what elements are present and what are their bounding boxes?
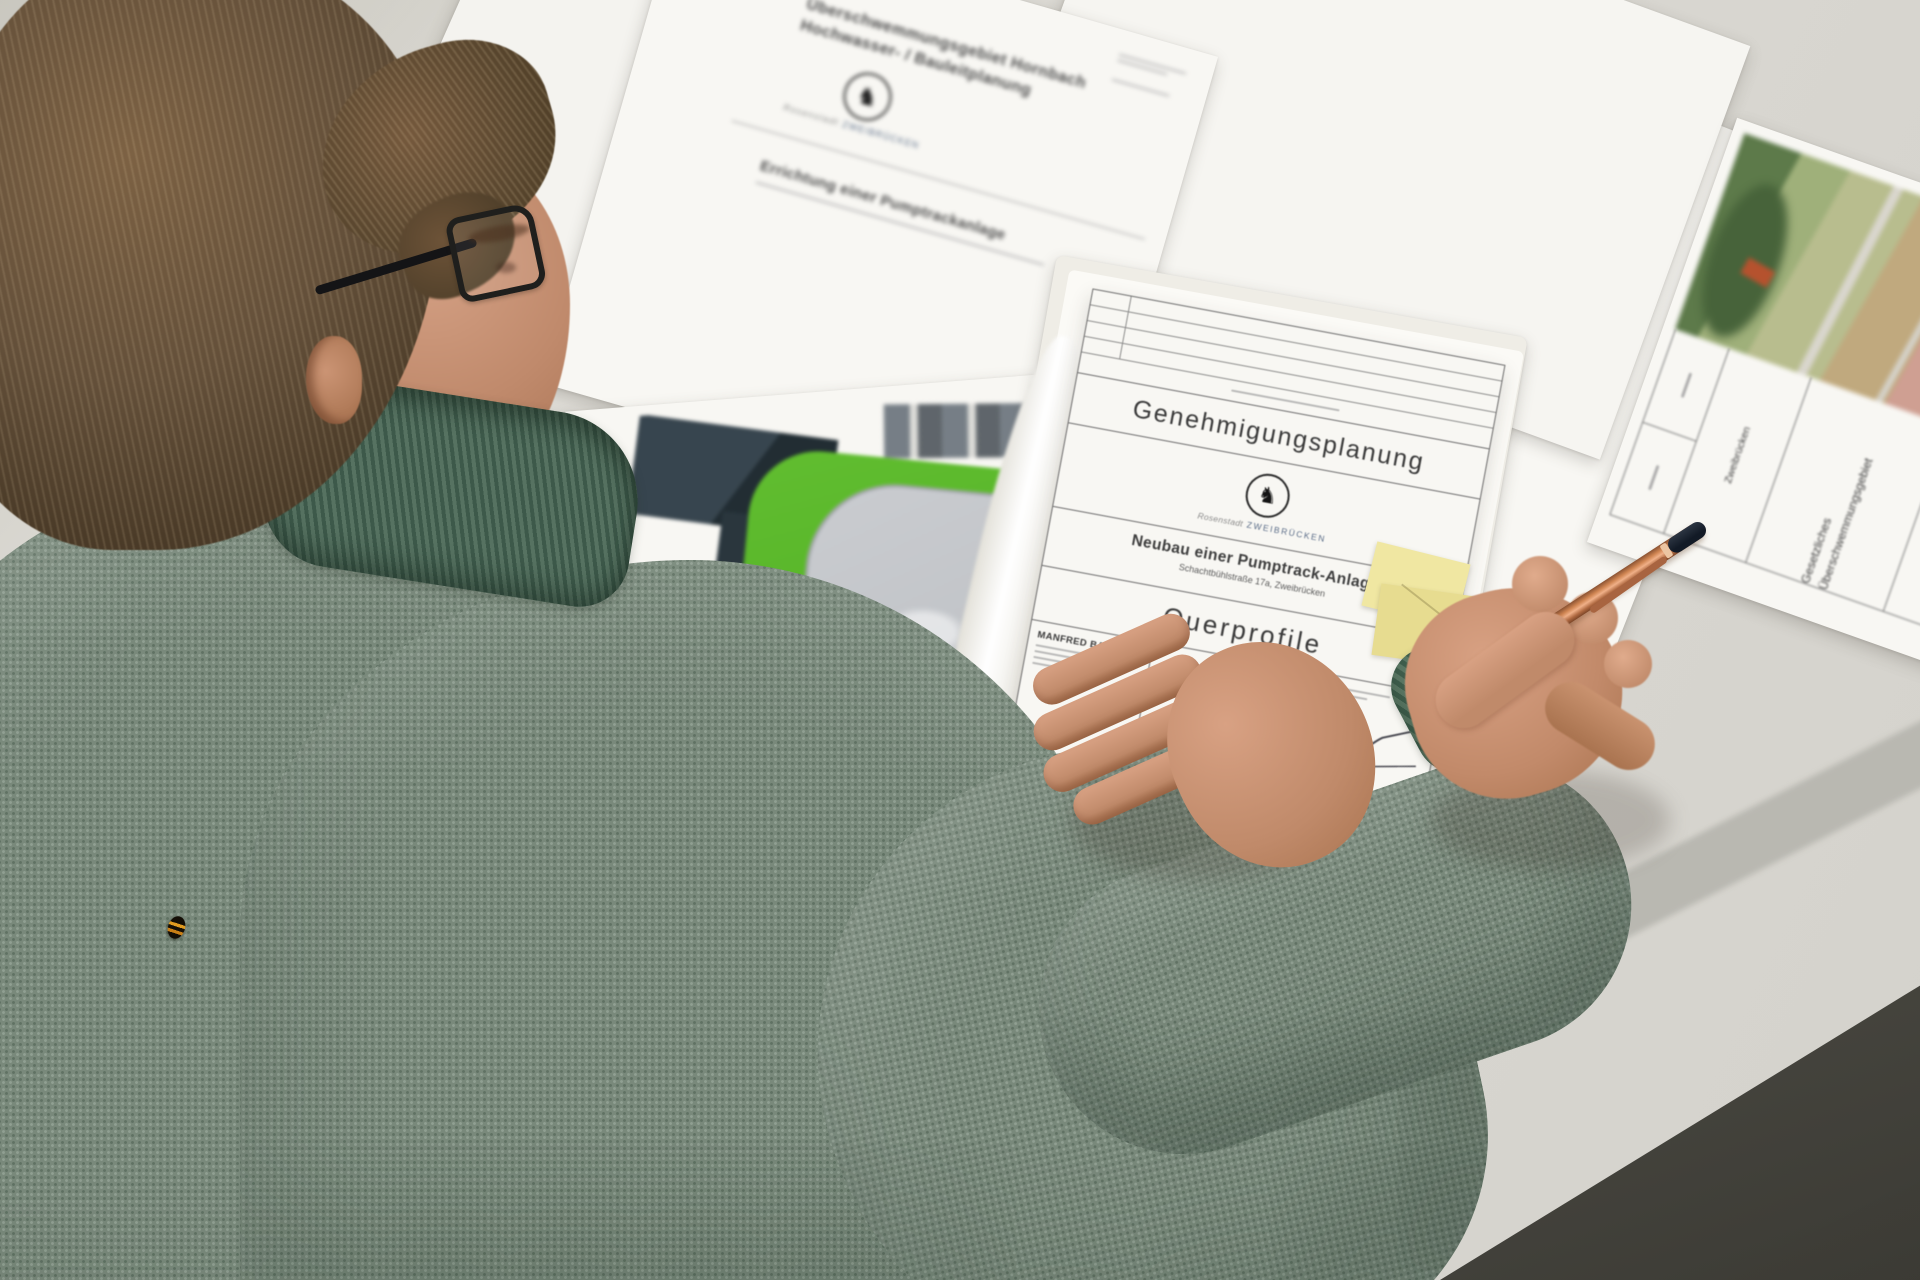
photo-scene: lage 3 ach auf Höhe der ten Anlage aufna… xyxy=(0,0,1920,1280)
right-hand-knuckle xyxy=(1604,640,1652,688)
report-heading: Errichtung einer Pumptrackanlage xyxy=(758,157,1099,270)
plan-brand-left: Rosenstadt xyxy=(1197,510,1244,528)
zweibruecken-horse-logo-icon: ♞ xyxy=(838,67,897,126)
glasses-lens-frame-icon xyxy=(444,202,548,304)
photo-road xyxy=(1787,177,1907,395)
report-subline-bar xyxy=(755,181,1044,266)
man-eye-shadow xyxy=(496,262,516,273)
illegible-text-bar xyxy=(1680,372,1692,398)
floodzone-project: Gesetzliches Überschwemmungsgebiet xyxy=(1797,395,1899,593)
plan-brand-right: ZWEIBRÜCKEN xyxy=(1246,519,1327,543)
report-brand-right: ZWEIBRÜCKEN xyxy=(841,119,920,151)
right-hand-knuckle xyxy=(1512,556,1568,612)
man-ear xyxy=(306,336,362,424)
report-brand-left: Rosenstadt xyxy=(782,102,840,127)
zweibruecken-horse-logo-icon: ♞ xyxy=(1242,470,1293,521)
floodzone-location: Zweibrücken xyxy=(1722,425,1753,485)
illegible-text-bar xyxy=(1647,465,1659,491)
